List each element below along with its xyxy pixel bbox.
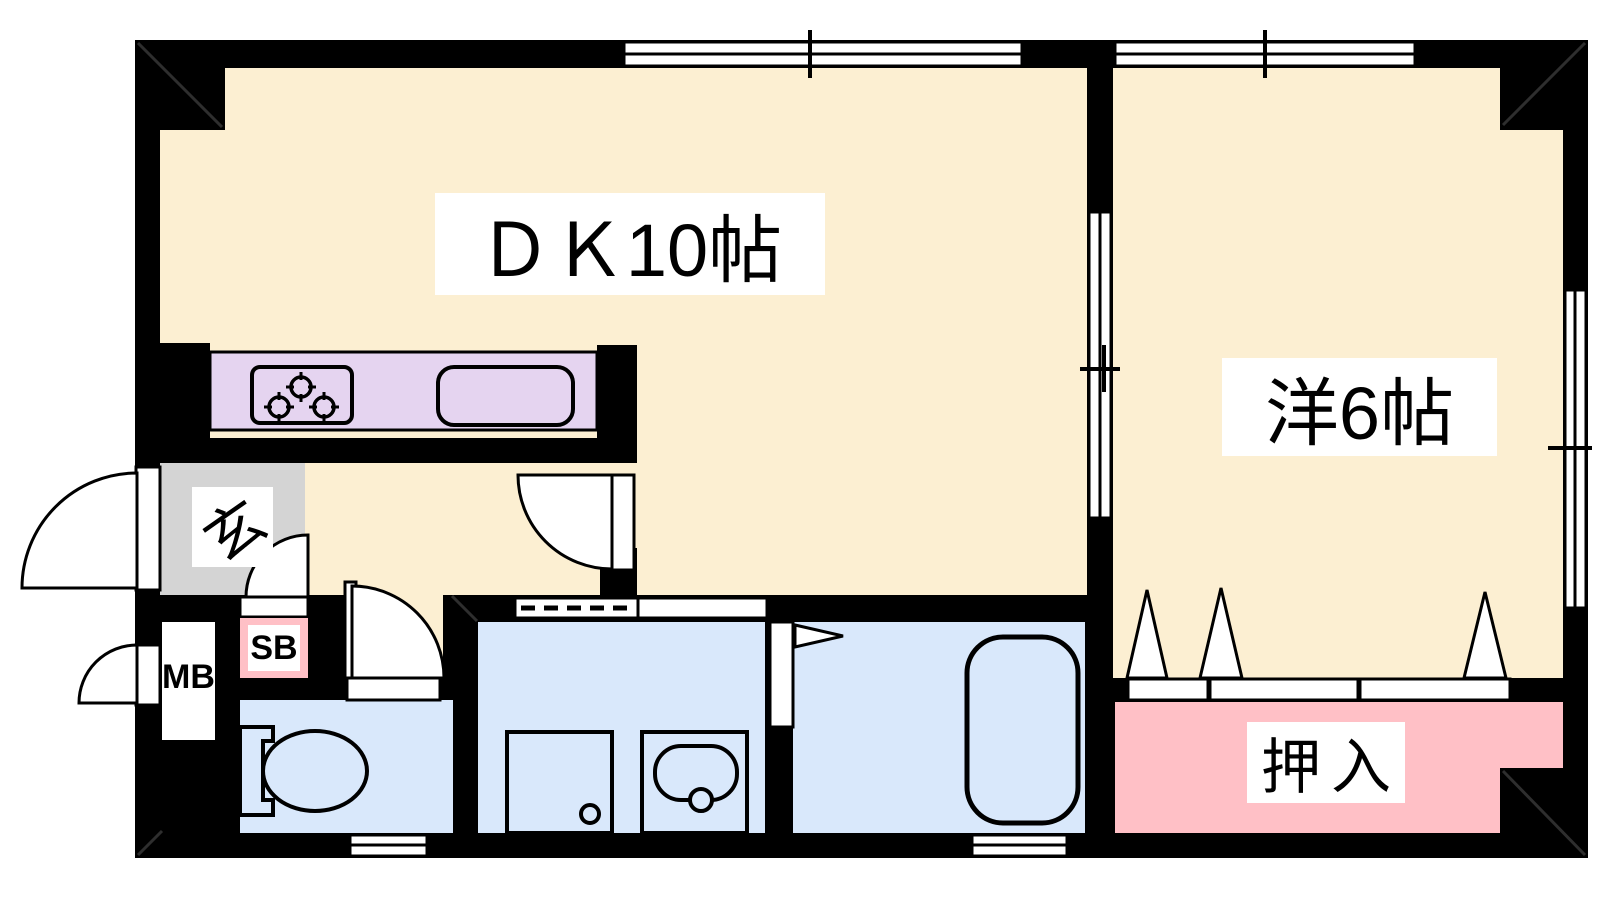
closet-floor-notch xyxy=(1500,702,1563,768)
wash-basin-faucet xyxy=(690,789,712,811)
shoe-box: SB xyxy=(240,618,308,678)
sliding-door-panel xyxy=(638,598,767,618)
label-shoe-box: SB xyxy=(248,625,300,671)
room-label-closet: 押入 xyxy=(1247,722,1405,803)
window-bottom-bath xyxy=(972,835,1067,856)
kitchen-counter-top xyxy=(210,352,597,430)
toilet-fixture xyxy=(240,727,367,815)
closet-door-panel xyxy=(1210,679,1358,700)
room-label-entrance: 玄 xyxy=(192,487,273,567)
washroom-floor xyxy=(478,622,765,833)
room-label-dining-kitchen: ＤＫ10帖 xyxy=(435,193,825,295)
kitchen-counter xyxy=(210,352,597,430)
washroom-sliding-door xyxy=(515,598,767,618)
toilet-door-opening xyxy=(347,678,440,700)
closet-door-panel xyxy=(1128,679,1208,700)
bathroom-floor xyxy=(793,622,1085,833)
window-bottom-toilet xyxy=(350,835,427,856)
room-label-western-room: 洋6帖 xyxy=(1222,358,1497,456)
meter-box-door xyxy=(79,645,160,705)
kitchen-lower-wall xyxy=(135,438,637,463)
front-door xyxy=(22,467,160,590)
toilet-bowl xyxy=(263,731,367,811)
meter-box-door-swing-arc xyxy=(79,645,137,703)
closet-door-panel xyxy=(1360,679,1510,700)
entrance-step xyxy=(240,597,308,617)
front-door-swing-arc xyxy=(22,473,137,588)
label-meter-box: MB xyxy=(162,622,215,740)
floor-plan: ＤＫ10帖 洋6帖 押入 玄 MB SB xyxy=(0,0,1600,900)
